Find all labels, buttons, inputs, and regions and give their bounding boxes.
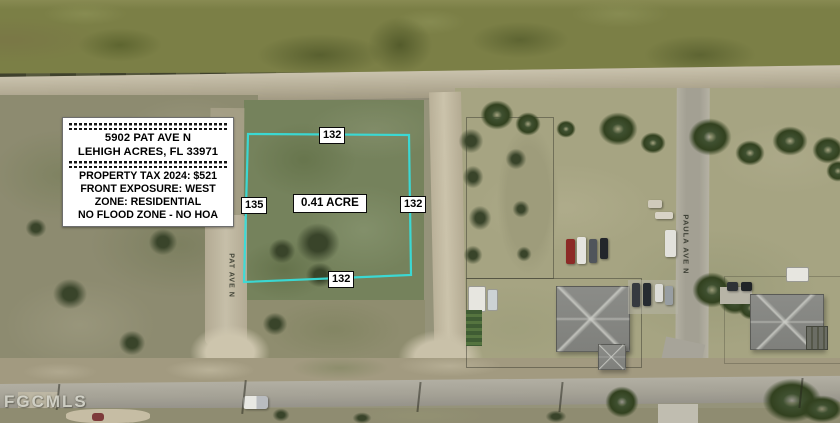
- address-line-2: LEHIGH ACRES, FL 33971: [68, 146, 228, 160]
- roadside-object: [92, 413, 104, 421]
- info-detail-exposure: FRONT EXPOSURE: WEST: [68, 183, 228, 196]
- house-a-wing: [598, 344, 626, 370]
- car-silver: [665, 286, 673, 305]
- car-dark: [643, 283, 651, 306]
- tree: [800, 395, 840, 423]
- aerial-listing-photo: 132 135 132 132 0.41 ACRE 5902 PAT AVE N…: [0, 0, 840, 423]
- shed: [468, 286, 486, 312]
- bush: [545, 410, 567, 423]
- trailer: [648, 200, 662, 208]
- canal-strip: [0, 0, 840, 76]
- dimension-label-right: 132: [400, 196, 426, 213]
- tree: [640, 132, 666, 154]
- info-detail-tax: PROPERTY TAX 2024: $521: [68, 170, 228, 183]
- lanai-patio: [806, 326, 828, 350]
- dashed-separator: [69, 123, 227, 130]
- driveway: [658, 404, 698, 423]
- bush: [272, 408, 290, 422]
- car-dark: [727, 282, 738, 291]
- address-line-1: 5902 PAT AVE N: [68, 132, 228, 146]
- garden-plot: [466, 310, 482, 346]
- car-black: [600, 238, 608, 259]
- dimension-label-left: 135: [241, 197, 267, 214]
- bush: [458, 128, 484, 154]
- house-a-roof: [556, 286, 630, 352]
- bush: [52, 278, 88, 310]
- street-label-paula-ave: PAULA AVE N: [682, 205, 691, 285]
- car-white: [655, 284, 663, 302]
- tree: [735, 140, 765, 166]
- bush: [268, 238, 296, 264]
- car-dark: [632, 283, 640, 307]
- lot-area-label: 0.41 ACRE: [293, 194, 367, 213]
- car-white: [577, 237, 586, 264]
- van-on-road: [243, 396, 268, 409]
- tree: [598, 112, 638, 146]
- tree: [515, 112, 541, 136]
- car-gray: [589, 239, 597, 263]
- tree: [480, 100, 514, 130]
- bush: [148, 228, 178, 256]
- bush: [463, 245, 483, 265]
- tree: [556, 120, 576, 138]
- bush: [352, 412, 372, 423]
- tree: [688, 118, 732, 156]
- bush: [262, 312, 288, 336]
- bush: [462, 165, 484, 189]
- bush: [295, 222, 341, 264]
- bush: [512, 200, 530, 218]
- car-white: [665, 230, 676, 257]
- shed: [786, 267, 809, 282]
- info-detail-flood: NO FLOOD ZONE - NO HOA: [68, 209, 228, 222]
- bush: [516, 246, 532, 262]
- info-detail-zone: ZONE: RESIDENTIAL: [68, 196, 228, 209]
- bush: [118, 330, 146, 356]
- trailer: [655, 212, 673, 219]
- bush: [25, 218, 47, 238]
- tree: [772, 126, 808, 156]
- property-info-box: 5902 PAT AVE N LEHIGH ACRES, FL 33971 PR…: [62, 117, 234, 227]
- dimension-label-top: 132: [319, 127, 345, 144]
- boat: [487, 289, 498, 311]
- dimension-label-bottom: 132: [328, 271, 354, 288]
- car-dark: [741, 282, 752, 291]
- mls-watermark: FGCMLS: [4, 392, 88, 412]
- bush: [505, 148, 527, 170]
- bush: [468, 205, 492, 231]
- street-label-pat-ave: PAT AVE N: [228, 241, 235, 311]
- tree: [605, 386, 639, 418]
- dashed-separator: [69, 161, 227, 168]
- car-red: [566, 239, 575, 264]
